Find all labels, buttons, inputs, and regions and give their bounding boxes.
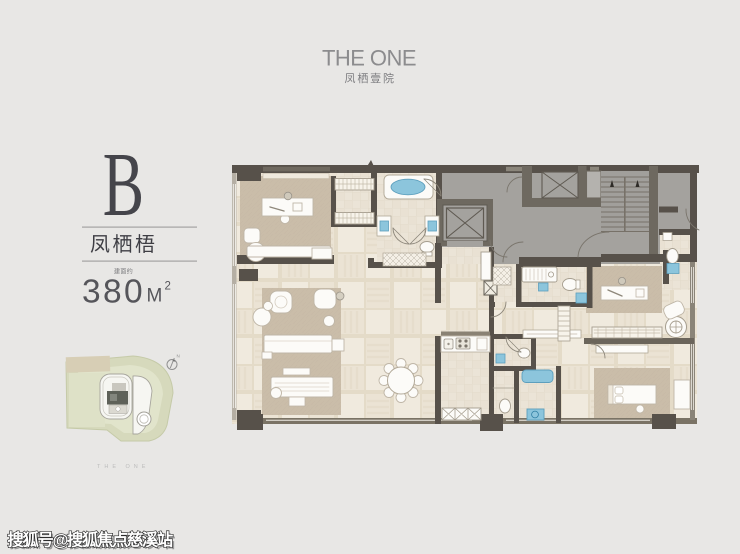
svg-text:380: 380 bbox=[82, 274, 145, 311]
svg-text:N: N bbox=[177, 354, 180, 359]
svg-text:凤栖壹院: 凤栖壹院 bbox=[345, 71, 399, 85]
svg-text:2: 2 bbox=[165, 281, 171, 293]
svg-text:THE ONE: THE ONE bbox=[322, 45, 419, 70]
svg-text:THE ONE: THE ONE bbox=[97, 464, 149, 470]
svg-text:M: M bbox=[147, 286, 163, 307]
svg-text:搜狐号@搜狐焦点慈溪站: 搜狐号@搜狐焦点慈溪站 bbox=[8, 531, 173, 550]
svg-text:凤栖梧: 凤栖梧 bbox=[90, 233, 158, 256]
svg-text:B: B bbox=[103, 134, 144, 235]
